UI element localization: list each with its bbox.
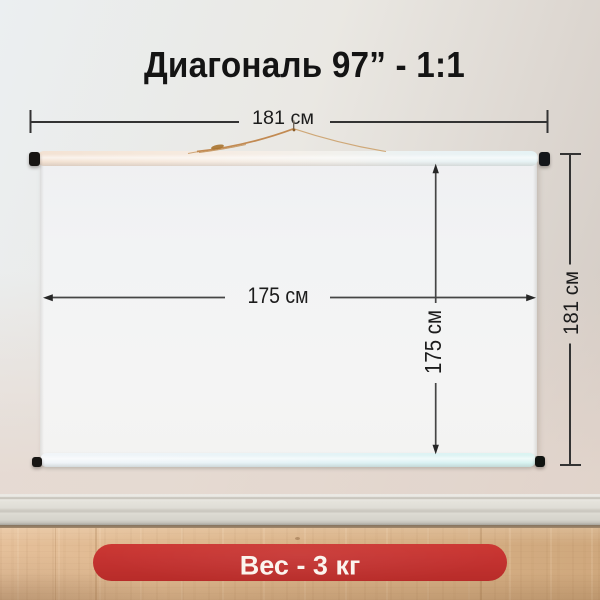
svg-text:175 см: 175 см xyxy=(248,283,309,308)
svg-text:181 см: 181 см xyxy=(252,107,314,129)
svg-text:175 см: 175 см xyxy=(420,310,446,374)
svg-text:181 см: 181 см xyxy=(559,271,583,335)
